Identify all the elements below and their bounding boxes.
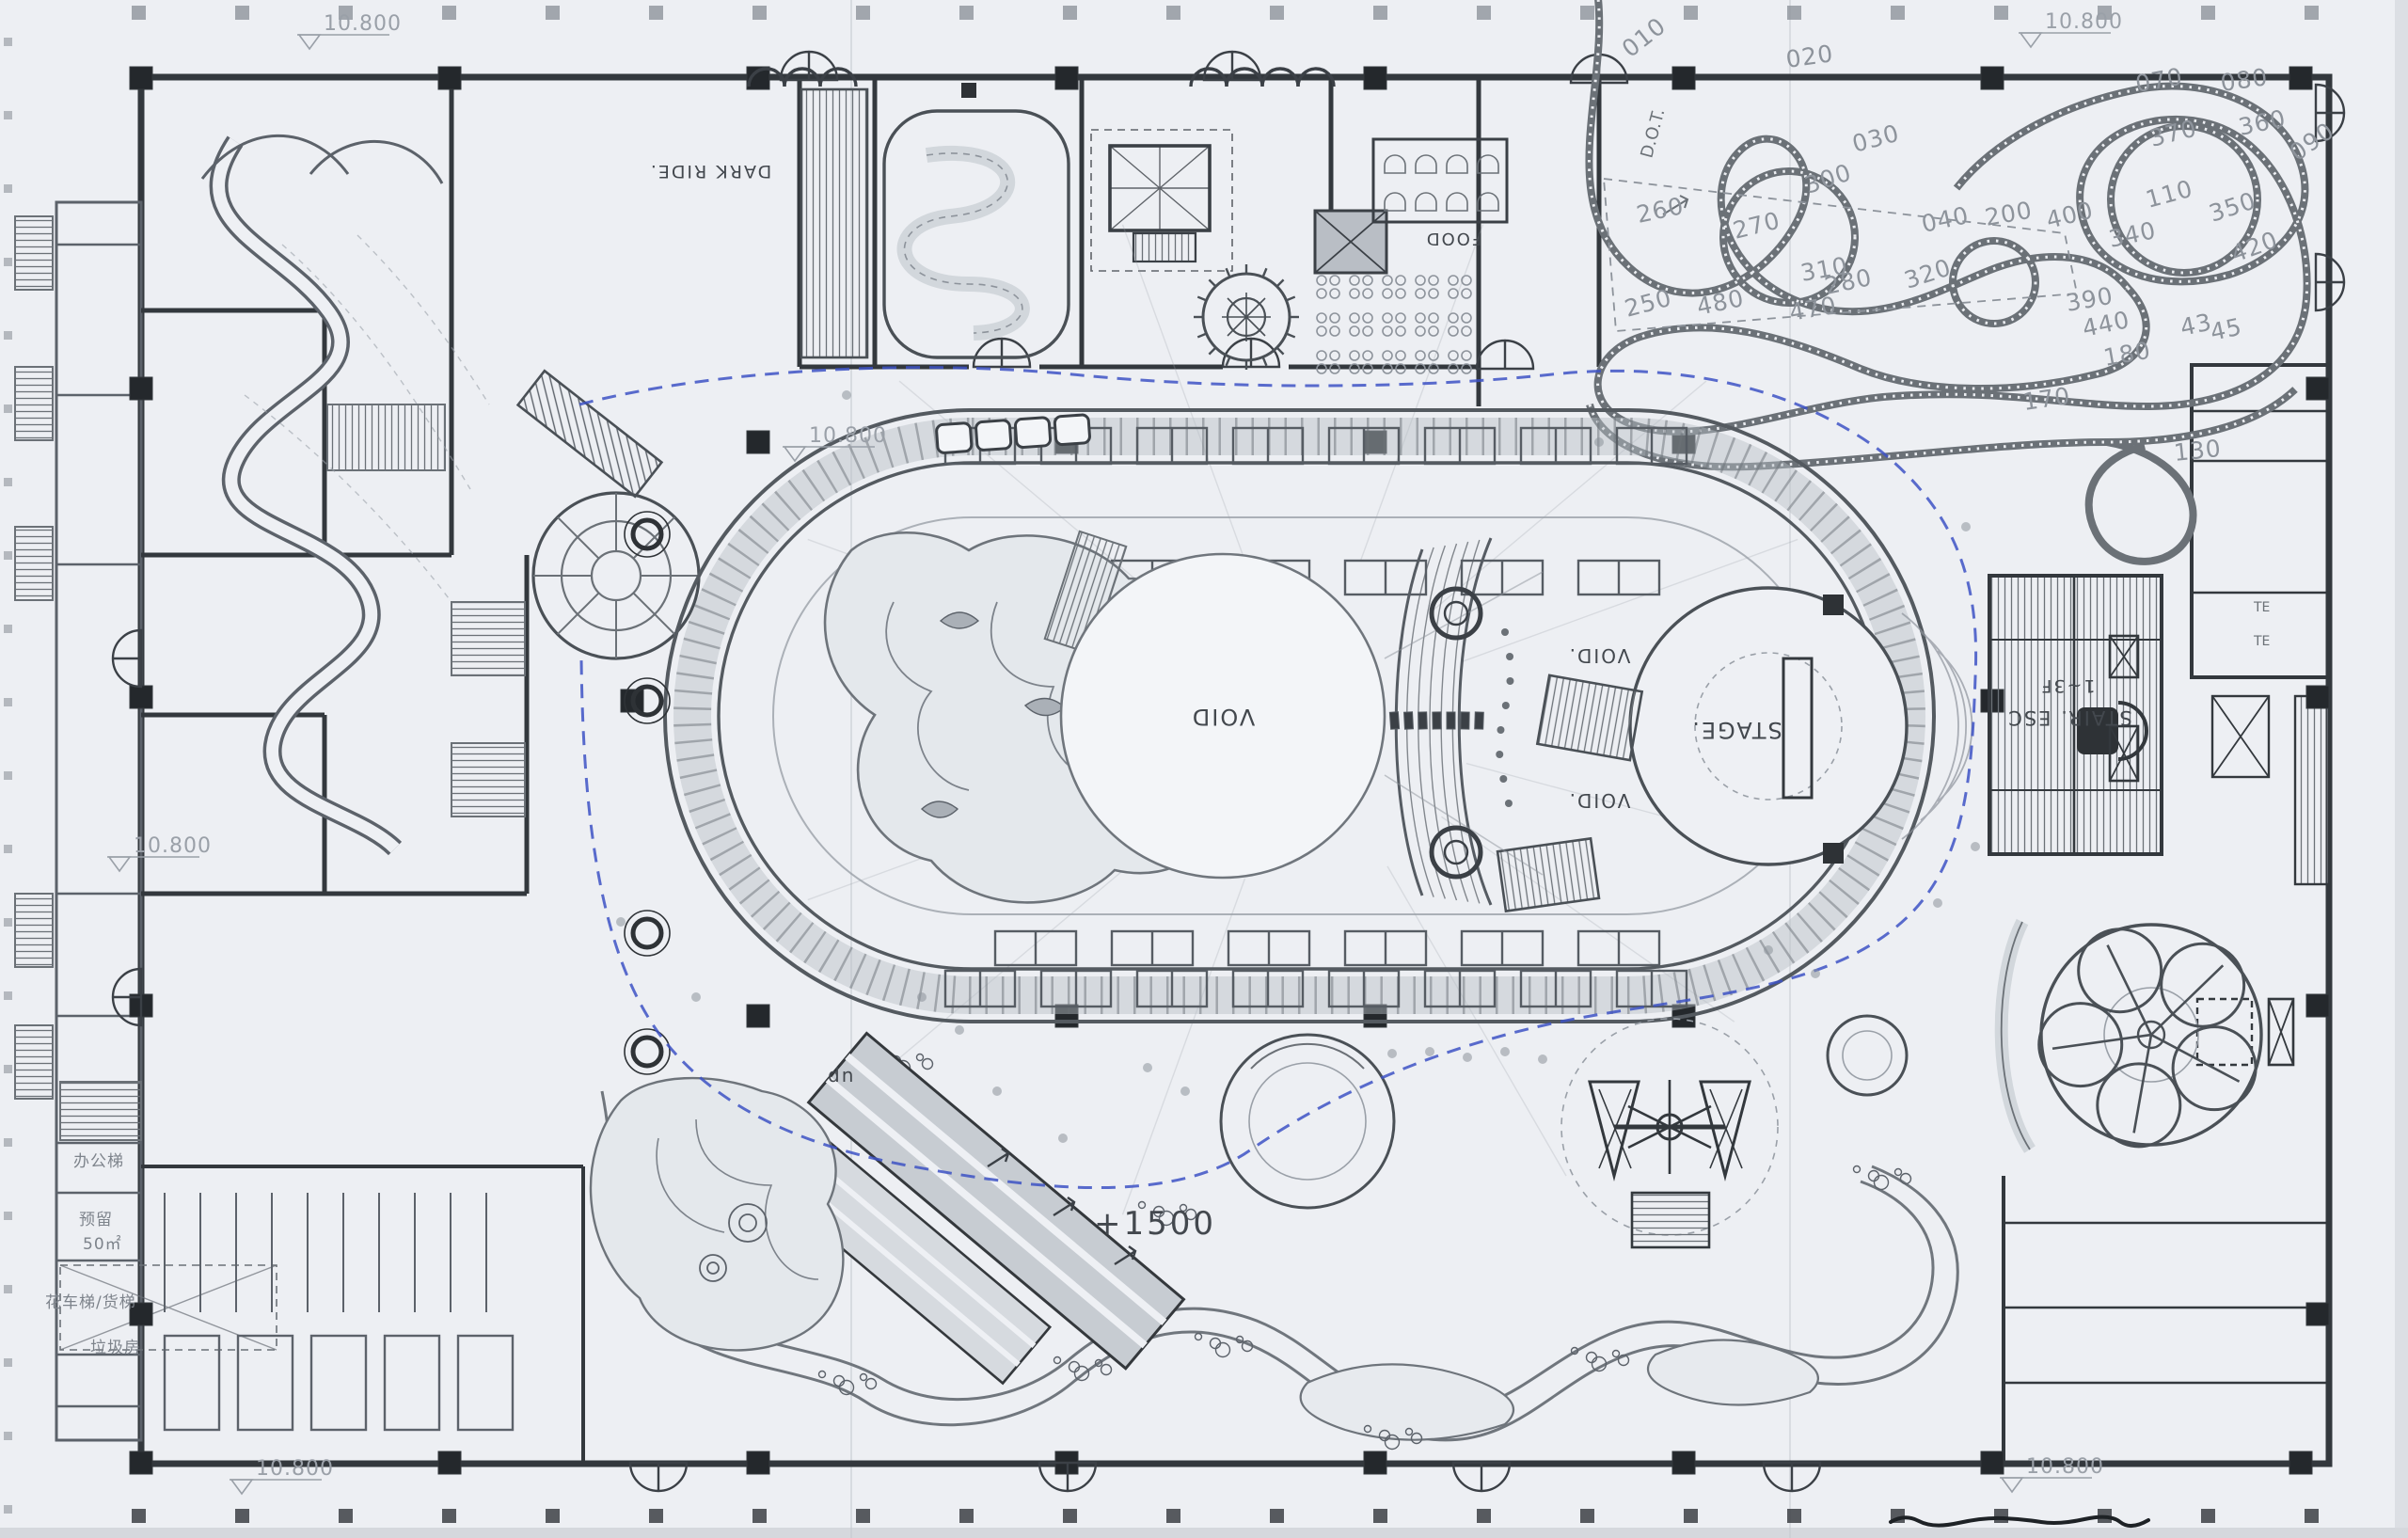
bottom-tick — [1787, 1509, 1801, 1523]
column — [438, 1451, 461, 1474]
shrub-dot — [616, 917, 626, 927]
elevation-value: 10.800 — [2045, 10, 2123, 34]
column — [747, 1451, 769, 1474]
column — [747, 431, 769, 453]
shrub-dot — [917, 992, 927, 1002]
top-tick — [546, 6, 560, 20]
stage-label: STAGE. — [1690, 717, 1782, 743]
bottom-tick — [546, 1509, 560, 1523]
bottom-tick — [856, 1509, 870, 1523]
loading-steps — [1632, 1193, 1709, 1247]
bottom-tick — [649, 1509, 663, 1523]
stepping-dot — [1497, 726, 1504, 734]
shrub-dot — [1538, 1054, 1547, 1064]
stage-steps-lower — [1497, 838, 1599, 911]
top-tick — [959, 6, 974, 20]
gate-tick — [1389, 712, 1399, 730]
shrub-dot — [1594, 437, 1604, 447]
top-tick — [856, 6, 870, 20]
food-label: FOOD — [1425, 229, 1482, 248]
right-page-edge — [2395, 0, 2408, 1538]
elevation-value: 10.800 — [134, 834, 212, 858]
shrub-dot — [1180, 1086, 1190, 1096]
bottom-tick — [1063, 1509, 1077, 1523]
elevation-value: 10.800 — [324, 12, 402, 36]
kitchen-shelving — [801, 89, 867, 357]
top-tick — [442, 6, 456, 20]
left-tick — [4, 478, 12, 486]
elevation-value: 10.800 — [809, 424, 887, 448]
stepping-dot — [1496, 751, 1503, 758]
left-tick — [4, 625, 12, 633]
stepping-dot — [1505, 800, 1513, 807]
bottom-page-edge — [0, 1528, 2408, 1538]
shrub-dot — [1971, 842, 1980, 851]
shrub-dot — [842, 390, 851, 400]
service-room-label: 办公梯 — [73, 1152, 124, 1171]
bottom-tick — [959, 1509, 974, 1523]
shrub-dot — [992, 1086, 1002, 1096]
shrub-dot — [1500, 1047, 1510, 1056]
left-tick — [4, 1065, 12, 1073]
bottom-tick — [235, 1509, 249, 1523]
service-room-label: 预留 — [79, 1211, 113, 1229]
column — [2306, 994, 2329, 1017]
column — [130, 686, 152, 708]
stage-steps-upper — [1537, 675, 1641, 760]
column — [1364, 67, 1386, 89]
left-tick — [4, 184, 12, 193]
stepping-dot — [1506, 677, 1513, 685]
top-tick — [1477, 6, 1491, 20]
column — [130, 67, 152, 89]
shrub-dot — [1143, 1063, 1152, 1072]
shrub-dot — [1463, 1053, 1472, 1062]
void-side-label: VOID. — [1568, 644, 1631, 667]
stepping-dot — [1501, 628, 1509, 636]
shrub-dot — [1058, 1134, 1068, 1143]
dark-ride-label: DARK RIDE. — [649, 161, 771, 182]
top-tick — [235, 6, 249, 20]
left-tick — [4, 404, 12, 413]
plus-1500-label: +1500 — [1094, 1205, 1216, 1243]
top-tick — [1580, 6, 1594, 20]
bottom-tick — [1166, 1509, 1180, 1523]
floor-plan-svg: DARK RIDE. VOID STAGE. STAIR. ESC 1~3F F… — [0, 0, 2408, 1538]
gate-tick — [1447, 712, 1455, 729]
service-room-label: 花车梯/货梯 — [45, 1293, 136, 1312]
left-tick — [4, 551, 12, 560]
left-tick — [4, 1358, 12, 1367]
stepping-dot — [1502, 702, 1510, 709]
bottom-tick — [2305, 1509, 2319, 1523]
column — [1364, 1451, 1386, 1474]
elevation-value: 10.800 — [2026, 1455, 2104, 1479]
column — [130, 377, 152, 400]
dn-label: dn — [828, 1064, 855, 1086]
stage-column — [1823, 595, 1844, 615]
service-room-label: 垃圾房 — [90, 1339, 141, 1357]
bottom-tick — [1684, 1509, 1698, 1523]
top-tick — [752, 6, 767, 20]
left-tick — [4, 111, 12, 119]
void-side-label: VOID. — [1568, 789, 1631, 812]
column — [1672, 67, 1695, 89]
column — [1981, 1451, 2004, 1474]
column — [1055, 67, 1078, 89]
top-tick — [1063, 6, 1077, 20]
left-tick — [4, 1138, 12, 1147]
left-tick — [4, 845, 12, 853]
left-tick — [4, 918, 12, 927]
shrub-dot — [1961, 522, 1971, 531]
shrub-dot — [691, 992, 701, 1002]
top-tick — [1994, 6, 2008, 20]
top-tick — [1684, 6, 1698, 20]
bottom-tick — [2201, 1509, 2215, 1523]
top-tick — [2201, 6, 2215, 20]
stage-column — [1823, 843, 1844, 864]
gate-tick — [1475, 712, 1484, 729]
shrub-dot — [1811, 969, 1820, 978]
elevation-value: 10.800 — [256, 1457, 334, 1481]
column — [747, 1005, 769, 1027]
left-tick — [4, 771, 12, 780]
bottom-tick — [132, 1509, 146, 1523]
left-tick — [4, 38, 12, 46]
left-tick — [4, 258, 12, 266]
column — [2306, 1303, 2329, 1325]
column — [1981, 67, 2004, 89]
left-tick — [4, 1212, 12, 1220]
left-tick — [4, 1505, 12, 1514]
column — [1672, 1451, 1695, 1474]
bottom-tick — [1373, 1509, 1387, 1523]
gate-tick — [1433, 712, 1441, 729]
shrub-dot — [955, 1025, 964, 1035]
bottom-tick — [442, 1509, 456, 1523]
column — [2289, 67, 2312, 89]
bottom-tick — [1477, 1509, 1491, 1523]
top-tick — [1270, 6, 1284, 20]
te-room-label: TE — [2253, 634, 2270, 649]
stepping-dot — [1499, 775, 1507, 783]
bottom-tick — [1580, 1509, 1594, 1523]
bottom-tick — [1270, 1509, 1284, 1523]
gate-tick — [1418, 712, 1428, 729]
column — [438, 67, 461, 89]
top-tick — [1166, 6, 1180, 20]
column — [2306, 377, 2329, 400]
gate-tick — [1461, 712, 1469, 729]
left-tick — [4, 1432, 12, 1440]
top-tick — [649, 6, 663, 20]
stair-esc-label: STAIR. ESC — [2006, 706, 2132, 729]
column-blob — [961, 83, 976, 98]
left-tick — [4, 1285, 12, 1293]
column — [2306, 686, 2329, 708]
top-tick — [1787, 6, 1801, 20]
stepping-dot — [1506, 653, 1513, 660]
void-center-label: VOID — [1191, 704, 1255, 730]
shrub-dot — [1933, 898, 1942, 908]
coaster-chainage-number: 130 — [2173, 435, 2223, 467]
top-tick — [1373, 6, 1387, 20]
bottom-tick — [339, 1509, 353, 1523]
bottom-tick — [752, 1509, 767, 1523]
stair-floors-label: 1~3F — [2039, 675, 2095, 696]
left-tick — [4, 991, 12, 1000]
top-tick — [132, 6, 146, 20]
bottom-tick — [1994, 1509, 2008, 1523]
column — [130, 1451, 152, 1474]
shrub-dot — [1425, 1047, 1434, 1056]
te-room-label: TE — [2253, 600, 2270, 615]
left-tick — [4, 331, 12, 340]
shrub-dot — [1387, 1049, 1397, 1058]
gate-tick — [1404, 712, 1414, 729]
column — [2289, 1451, 2312, 1474]
top-tick — [1891, 6, 1905, 20]
shrub-dot — [1764, 945, 1773, 955]
floor-plan-scan: DARK RIDE. VOID STAGE. STAIR. ESC 1~3F F… — [0, 0, 2408, 1538]
service-room-label: 50㎡ — [83, 1235, 122, 1254]
left-tick — [4, 698, 12, 706]
top-tick — [2305, 6, 2319, 20]
